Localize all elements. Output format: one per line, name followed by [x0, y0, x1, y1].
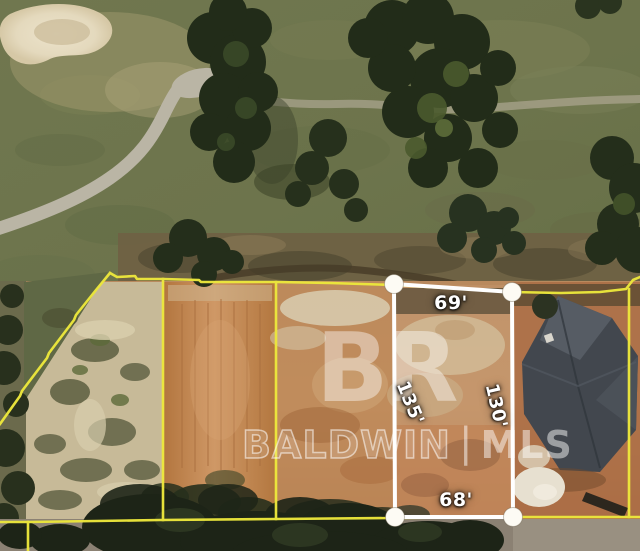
- watermark-separator: |: [459, 423, 472, 463]
- house-lot: [513, 282, 640, 520]
- tree-by-house: [532, 293, 558, 319]
- lot-1-scrub: [24, 272, 164, 521]
- watermark-brand: BALDWIN | MLS: [242, 426, 573, 464]
- aerial-photo: BR BALDWIN | MLS 69' 135' 130' 68': [0, 0, 640, 551]
- road-strip-right: [513, 519, 640, 551]
- watermark-brand-right: MLS: [480, 426, 572, 464]
- aerial-scene: [0, 0, 640, 551]
- dimension-label-top: 69': [434, 292, 468, 314]
- watermark-logo: BR: [316, 322, 456, 417]
- lot-corner-handle-ne: [503, 283, 522, 302]
- lot-corner-handle-sw: [386, 508, 405, 527]
- bunker-shade: [34, 19, 90, 45]
- dimension-label-bottom: 68': [439, 489, 473, 511]
- lot-corner-handle-se: [504, 508, 523, 527]
- lot-corner-handle-nw: [385, 275, 404, 294]
- watermark-brand-left: BALDWIN: [242, 426, 451, 464]
